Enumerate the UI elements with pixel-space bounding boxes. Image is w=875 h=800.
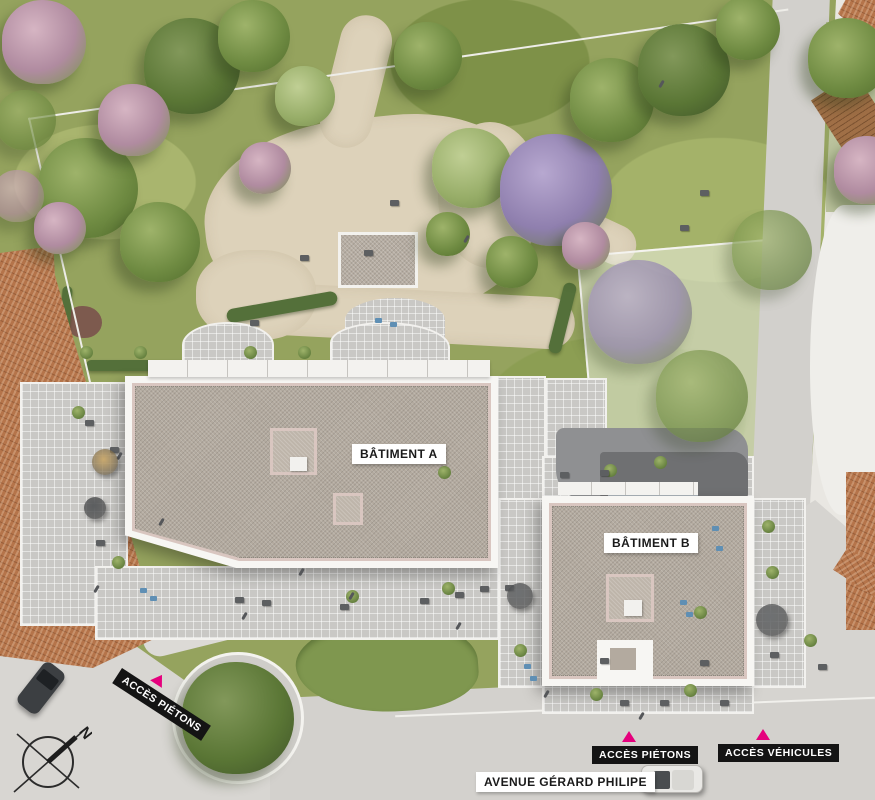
gravel-patch <box>338 232 418 288</box>
terrace-a-south <box>95 566 515 640</box>
balconies-a <box>148 360 490 377</box>
compass-north-letter: N <box>76 724 92 743</box>
car-windshield <box>654 771 670 789</box>
car-roof <box>672 770 694 790</box>
terrace-b-east <box>752 498 806 688</box>
building-b-court-block <box>608 646 638 672</box>
street-name-label: AVENUE GÉRARD PHILIPE <box>476 772 655 792</box>
access-vehicles-label: ACCÈS VÉHICULES <box>718 744 839 762</box>
skylight <box>333 493 363 525</box>
access-marker-triangle <box>622 731 636 742</box>
north-compass: N <box>8 722 92 800</box>
skylight-glass <box>624 600 642 616</box>
terrace-b-west <box>498 498 544 688</box>
terracotta-roof-northwest <box>0 246 58 334</box>
sand-play-circle <box>438 122 542 268</box>
context-east-plot <box>810 205 875 515</box>
building-a-label: BÂTIMENT A <box>352 444 446 464</box>
terrace-b-south <box>542 684 754 714</box>
access-marker-triangle <box>756 729 770 740</box>
balconies-b <box>558 482 698 495</box>
skylight-glass <box>290 457 307 471</box>
car-windshield <box>36 668 60 691</box>
building-b <box>542 496 754 686</box>
building-a <box>125 376 498 568</box>
site-plan: N BÂTIMENT A BÂTIMENT B AVENUE GÉRARD PH… <box>0 0 875 800</box>
access-pedestrian-south-label: ACCÈS PIÉTONS <box>592 746 698 764</box>
building-b-label: BÂTIMENT B <box>604 533 698 553</box>
